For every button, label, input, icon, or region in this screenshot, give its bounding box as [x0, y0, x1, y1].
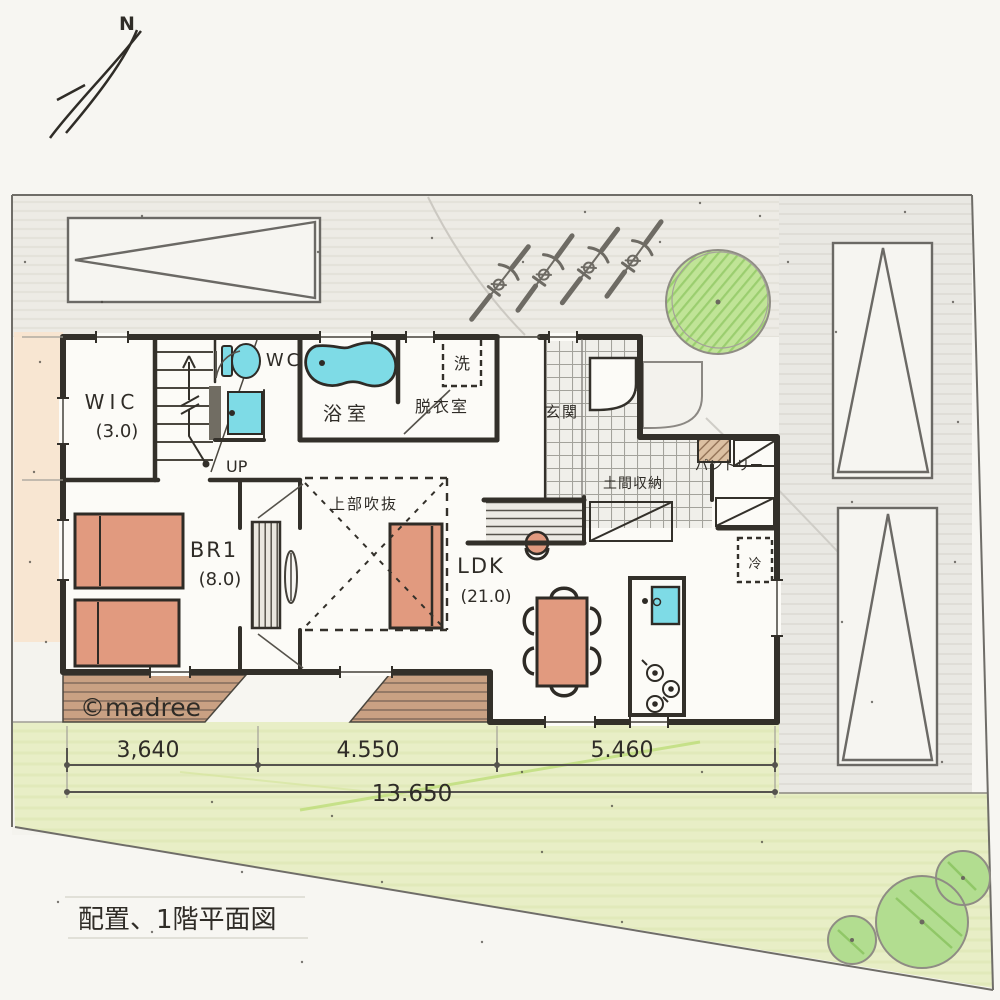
room-label-wic: WIC: [85, 390, 140, 414]
parking-space-east-2: [838, 508, 937, 765]
room-label-wc: WC: [266, 350, 302, 371]
washbasin: [228, 392, 262, 434]
room-area-br1: (8.0): [199, 569, 242, 590]
room-area-wic: (3.0): [96, 421, 139, 442]
drawing-title: 配置、1階平面図: [78, 905, 277, 935]
sofa: [390, 524, 442, 628]
kitchen-island: [630, 578, 684, 715]
parking-space-east-1: [833, 243, 932, 478]
room-label-ldk: LDK: [457, 554, 505, 578]
entry-porch: [643, 362, 702, 428]
dim-seg3: 5.460: [591, 738, 654, 763]
bathtub: [306, 343, 396, 386]
parking-space-north: [68, 218, 320, 302]
washer-label: 洗: [454, 354, 470, 373]
room-area-ldk: (21.0): [460, 587, 511, 607]
toilet: [222, 344, 260, 378]
floor-plan-canvas: N WIC (3.0) WC 浴室 脱衣室 洗 玄関 土間収納 パントリー 上部…: [0, 0, 1000, 1000]
dining-table: [537, 598, 587, 686]
stairs-up-label: UP: [226, 457, 248, 476]
room-label-dressing: 脱衣室: [415, 397, 469, 416]
north-label: N: [119, 13, 135, 35]
void-above-label: 上部吹抜: [330, 495, 398, 513]
floor-plan-drawing: N WIC (3.0) WC 浴室 脱衣室 洗 玄関 土間収納 パントリー 上部…: [0, 0, 1000, 1000]
dim-seg1: 3,640: [117, 738, 180, 763]
dining-set: [524, 588, 600, 696]
entry-door-swing: [590, 358, 636, 410]
tree: [666, 250, 770, 354]
bed-1: [75, 514, 183, 588]
room-label-pantry: パントリー: [695, 458, 763, 474]
room-label-br1: BR1: [190, 538, 238, 562]
dim-seg2: 4.550: [337, 738, 400, 763]
room-label-doma-storage: 土間収納: [603, 476, 663, 492]
fridge-label: 冷: [748, 557, 761, 572]
wall-pillar: [209, 386, 221, 440]
side-gravel-strip: [14, 332, 63, 642]
north-arrow: [50, 30, 141, 138]
watermark: ©madree: [80, 693, 201, 722]
room-label-bath: 浴室: [323, 403, 371, 425]
bed-2: [75, 600, 179, 666]
room-label-entrance: 玄関: [545, 403, 579, 421]
dim-total: 13.650: [372, 781, 452, 807]
